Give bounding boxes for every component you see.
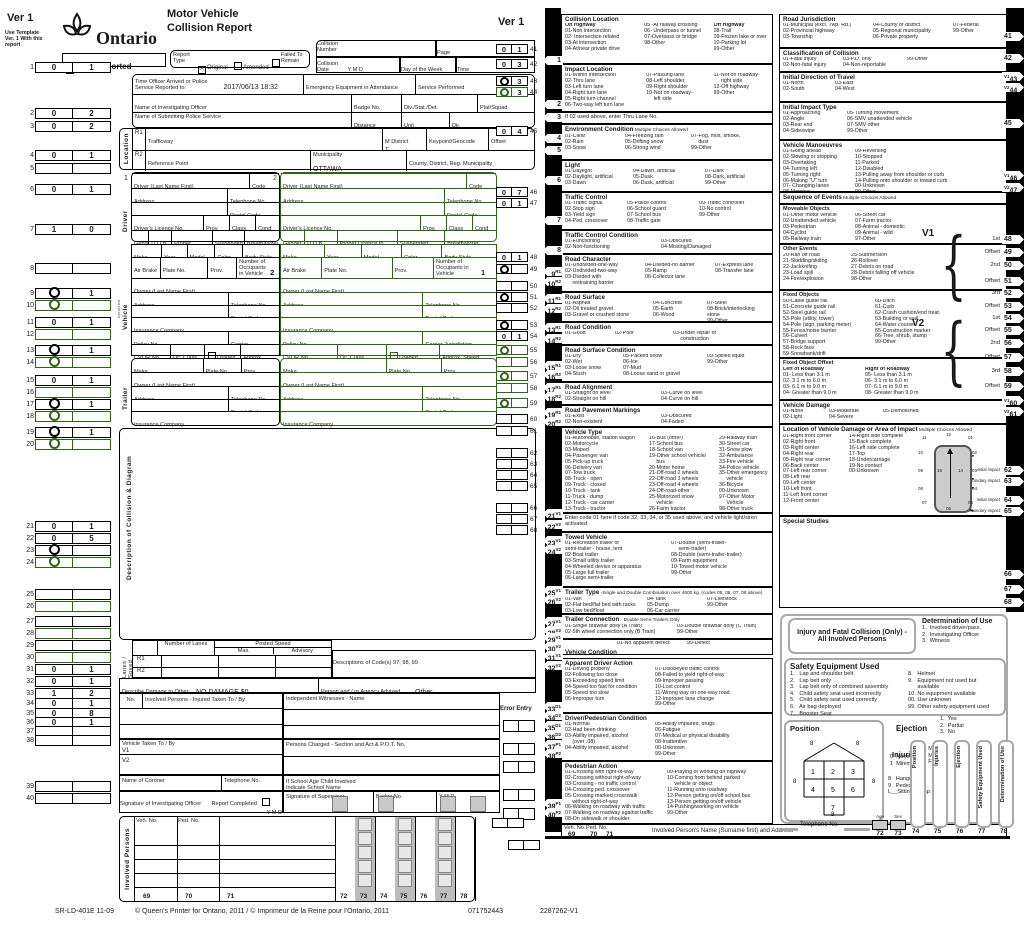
- right-margin-row-63[interactable]: 63: [496, 459, 537, 469]
- descriptions-codes-box[interactable]: Descriptions of Code(s) 97, 98, 99: [332, 650, 536, 678]
- code-section-towed: Towed Vehicle01-Recreation trailer orsem…: [561, 532, 773, 587]
- margin-row-27[interactable]: 27: [24, 616, 111, 627]
- supervisor-signature-label: Signature of Supervisor: [284, 792, 373, 812]
- failed-to-remain-checkbox[interactable]: [272, 59, 280, 67]
- ontario-wordmark: Ontario: [96, 28, 157, 49]
- right-margin-row-59[interactable]: 59: [496, 398, 537, 408]
- margin-row-30[interactable]: 30: [24, 652, 111, 663]
- injured-taken-box[interactable]: No. Involved Persons - Injured Taken To …: [119, 693, 283, 739]
- location-r1: R1: [133, 129, 145, 150]
- right-margin-row-58[interactable]: 58: [496, 383, 537, 393]
- footer-num1: 071752443: [468, 908, 503, 915]
- reference-point-label: Reference Point: [148, 161, 188, 167]
- band-tag-59: 59: [1002, 382, 1024, 391]
- footer-num2: 2287262-V1: [540, 908, 578, 915]
- sex-box[interactable]: Sex 73: [890, 814, 906, 837]
- service-performed-label: Service Performed: [418, 85, 464, 91]
- error-entry-box-4[interactable]: [503, 789, 535, 801]
- page-label: Page: [437, 50, 450, 56]
- right-margin-row-64[interactable]: 64: [496, 470, 537, 480]
- time-label: Time: [457, 67, 469, 73]
- collision-date-ymd: Y M D: [347, 67, 362, 73]
- margin-row-20[interactable]: 20: [24, 439, 111, 450]
- band-tag-42: 42: [1002, 54, 1024, 63]
- collision-number-label: Collision Number: [317, 41, 349, 53]
- right-margin-row-55[interactable]: 55: [496, 345, 537, 355]
- badge-label: Badge No.: [354, 105, 380, 111]
- signature-stamp-3: [440, 796, 456, 812]
- reference-point-cell[interactable]: Reference Point: [145, 151, 310, 171]
- code-section-trailer_conn: Trailer Connection - Double Semi-Trailer…: [561, 614, 773, 639]
- badge-cell[interactable]: Badge No.: [351, 95, 401, 112]
- persons-charged-label: Persons Charged - Section and Act & P.O.…: [284, 740, 499, 757]
- officer-name-label: Name of Investigating Officer: [135, 105, 207, 111]
- ontario-trillium-icon: [58, 12, 96, 57]
- margin-row-19[interactable]: 191: [24, 427, 111, 438]
- right-margin-row-53[interactable]: 53: [496, 320, 537, 330]
- band-tag-48: 48: [1002, 235, 1024, 244]
- police-service-cell[interactable]: Name of Submitting Police Service OPS: [133, 113, 351, 129]
- band-tag-57: 57: [1002, 353, 1024, 362]
- num-75: 75: [934, 828, 941, 835]
- band-tag-53: 53: [1002, 302, 1024, 311]
- band-tag-60: V160: [1002, 396, 1024, 405]
- div-stat-label: Div./Stat./Det.: [404, 105, 438, 111]
- municipality-label: Municipality: [313, 152, 404, 158]
- collision-date-box[interactable]: Collision Date Y M D: [316, 57, 400, 73]
- code-section-init_direction: Initial Direction of Travel01-North02-So…: [779, 72, 1007, 102]
- vehicle1-section-label: Vehicle: [122, 270, 129, 330]
- code-section-init_impact: Initial Impact Type01-Approaching02-Angl…: [779, 102, 1007, 140]
- driver2-box: 2 Driver (Last Name First) Code Address …: [280, 172, 497, 242]
- num-76: 76: [956, 828, 963, 835]
- svg-text:8: 8: [872, 779, 876, 785]
- form-number: SR-LD-401E 11-09: [55, 908, 114, 915]
- plat-squad-cell[interactable]: Plat/Squad: [477, 95, 534, 112]
- band-tag-45: 45: [1002, 119, 1024, 128]
- ejection-items: 1. Yes2. Partial3. No: [940, 716, 964, 736]
- day-of-week-label: Day of the Week: [401, 67, 442, 73]
- svg-text:8: 8: [793, 779, 797, 785]
- time-officer-value: 2017/06/13 18:32: [223, 84, 278, 91]
- code-section-dp_condition: Driver/Pedestrian Condition01-Normal02-H…: [561, 713, 773, 761]
- right-margin-row-42[interactable]: 0342: [496, 59, 537, 69]
- report-type-box: Report Type Original Amended Failed To R…: [170, 50, 310, 68]
- code-section-thru_note: If 02 used above, enter Thru Lane No.: [561, 112, 773, 124]
- time-officer-cell[interactable]: Time Officer Arrived or Police Service R…: [133, 75, 303, 94]
- involved-persons-label: Involved Persons: [124, 828, 131, 890]
- band-tag-61: V261: [1002, 407, 1024, 416]
- margin-row-28[interactable]: 28: [24, 628, 111, 639]
- band-tag-63: 63: [1002, 477, 1024, 486]
- max-header: Max.: [215, 648, 274, 654]
- code-section-road_jurisdiction: Road Jurisdiction01-Municipal (excl. Twp…: [779, 14, 1007, 48]
- amended-checkbox[interactable]: [234, 62, 242, 70]
- margin-row-16[interactable]: 16: [24, 387, 111, 398]
- strip-71: 71: [606, 831, 613, 838]
- coroner-box[interactable]: Name of Coroner Telephone No.: [119, 775, 283, 791]
- band-tag-67: 67: [1002, 585, 1024, 594]
- right-margin-row-66[interactable]: 66: [496, 503, 537, 513]
- original-checkbox[interactable]: [198, 66, 206, 74]
- code-section-trailer_type: Trailer Type -Single and Double Combinat…: [561, 587, 773, 614]
- margin-row-4[interactable]: 401: [24, 150, 111, 161]
- safety-equipment-box: Safety Equipment Used 1. Lap and shoulde…: [784, 658, 1006, 716]
- error-entry-label: Error Entry: [500, 706, 532, 712]
- code-section-light: Light01-Daylight02-Daylight, artificial0…: [561, 160, 773, 192]
- band-tag-66: 66: [1002, 570, 1024, 579]
- margin-row-14[interactable]: 14: [24, 357, 111, 368]
- original-label: Original: [207, 65, 228, 71]
- band-tag-46: V146: [1002, 171, 1024, 180]
- version-label-left: Ver 1: [7, 12, 33, 24]
- right-margin-row-43[interactable]: 343: [496, 76, 537, 86]
- right-margin-row-45[interactable]: 0445: [496, 126, 537, 136]
- advisory-header: Advisory: [274, 648, 332, 654]
- margin-row-7[interactable]: 710: [24, 224, 111, 235]
- school-box[interactable]: If School Age Child Involved Indicate Sc…: [283, 775, 500, 791]
- police-service-label: Name of Submitting Police Service: [135, 114, 349, 120]
- lanes-speed-table: Number of Lanes Posted Speed Max. Adviso…: [132, 640, 332, 678]
- vehicle1-involved-note: Involved: [117, 288, 121, 318]
- svg-text:8: 8: [856, 741, 860, 747]
- amended-label: Amended: [243, 65, 269, 71]
- form-title-line2: Collision Report: [167, 22, 252, 34]
- emergency-cell[interactable]: Emergency Equipment in Attendance: [303, 75, 415, 94]
- svg-text:8: 8: [810, 741, 814, 747]
- descriptions-codes-label: Descriptions of Code(s) 97, 98, 99: [333, 660, 418, 666]
- vehicle-taken-label: Vehicle Taken To / By: [120, 740, 282, 748]
- margin-row-21[interactable]: 2101: [24, 521, 111, 532]
- keypoint-cell[interactable]: Keypoint/Geocode: [426, 129, 488, 150]
- margin-row-39[interactable]: 39: [24, 781, 111, 792]
- collision-number-box[interactable]: Collision Number: [316, 40, 436, 57]
- collision-date-label: Collision Date: [317, 61, 343, 73]
- margin-row-2[interactable]: 202: [24, 108, 111, 119]
- vertical-label-determination-of-use: Determination of Use: [1000, 746, 1006, 802]
- svg-text:5: 5: [831, 787, 835, 794]
- report-completed-label: Report Completed: [212, 801, 257, 807]
- right-margin-row-61[interactable]: 61: [496, 426, 537, 436]
- band-tag-51: 51: [1002, 277, 1024, 286]
- signature-stamp-1: [332, 796, 348, 812]
- description-diagram-box[interactable]: [119, 428, 536, 640]
- svg-text:1: 1: [811, 769, 815, 776]
- right-margin-row-67[interactable]: 67: [496, 514, 537, 524]
- ejection-group: Ejection: [896, 718, 927, 736]
- ejection-title: Ejection: [896, 724, 927, 733]
- seq-v2-brace: {: [941, 308, 967, 394]
- right-margin-row-68[interactable]: 68: [496, 525, 537, 535]
- margin-row-8[interactable]: 8: [24, 263, 111, 274]
- seq-v1-label: V1: [922, 228, 934, 239]
- margin-row-10[interactable]: 10: [24, 300, 111, 311]
- band-tag-49: 49: [1002, 248, 1024, 257]
- band-tag-64: 64: [1002, 496, 1024, 505]
- municipality-cell[interactable]: Municipality OTTAWA: [310, 151, 406, 171]
- band-tag-50: 50: [1002, 261, 1024, 270]
- svg-text:3: 3: [851, 769, 855, 776]
- vehicle2-box: Make Year Model Color Body Style Air Bra…: [280, 244, 497, 356]
- vehicle-damage-diagram: 0102030405060708091011121416: [922, 438, 982, 518]
- margin-row-32[interactable]: 3201: [24, 676, 111, 687]
- number-of-lanes-header: Number of Lanes: [158, 641, 215, 655]
- right-margin-row-47[interactable]: 0147: [496, 198, 537, 208]
- band-tag-47: V247: [1002, 183, 1024, 192]
- right-margin-row-62[interactable]: 62: [496, 448, 537, 458]
- right-margin-row-57[interactable]: 57: [496, 371, 537, 381]
- code-section-road_surface: Road Surface01-Asphalt02-Oil treated gra…: [561, 292, 773, 322]
- code-section-driver_action: Apparent Driver Action01-Driving properl…: [561, 658, 773, 713]
- margin-row-3[interactable]: 302: [24, 121, 111, 132]
- description-section-label: Description of Collision & Diagram: [126, 490, 133, 580]
- margin-row-24[interactable]: 24: [24, 557, 111, 568]
- margin-row-9[interactable]: 91: [24, 288, 111, 299]
- code-section-ped_action: Pedestrian Action01-Crossing with right-…: [561, 761, 773, 824]
- distance-cell[interactable]: Distance: [351, 113, 401, 129]
- vertical-label-ejection: Ejection: [956, 746, 962, 768]
- code-section-seq_header: Sequence of Events Multiple Choices Allo…: [779, 192, 1007, 204]
- strip-70: 70: [590, 831, 597, 838]
- margin-row-25[interactable]: 25: [24, 589, 111, 600]
- code-section-rpm: Road Pavement Markings01-Exist02-Non-exi…: [561, 405, 773, 427]
- lanes-r1[interactable]: R1: [133, 656, 162, 667]
- m-district-cell[interactable]: M District TO: [382, 129, 426, 150]
- right-margin-row-48[interactable]: 0148: [496, 252, 537, 262]
- injury-fatal-title-box: Injury and Fatal Collision (Only) - All …: [788, 618, 916, 654]
- error-entry-box-2[interactable]: [503, 743, 535, 755]
- code-section-fixed_objects: Fixed Objects50-Cable guide rail51-Concr…: [779, 290, 1007, 358]
- band-tag-44: V244: [1002, 83, 1024, 92]
- error-entry-box-1[interactable]: [503, 720, 535, 732]
- band-tag-62: 62: [1002, 466, 1024, 475]
- seq-v1-brace: {: [941, 222, 967, 308]
- code-section-vehicle_cond: Vehicle Condition01-No apparent defect99…: [561, 639, 773, 655]
- margin-row-12[interactable]: 12: [24, 329, 111, 340]
- location-r2: R2: [133, 151, 145, 171]
- position-diagram: 123456788888: [790, 735, 878, 822]
- margin-row-17[interactable]: 171: [24, 399, 111, 410]
- trafficway-cell[interactable]: Trafficway: [145, 129, 382, 150]
- persons-charged-box[interactable]: Persons Charged - Section and Act & P.O.…: [283, 739, 500, 775]
- emergency-label: Emergency Equipment in Attendance: [306, 85, 398, 91]
- vehicle-taken-v2: V2: [120, 755, 282, 767]
- code-section-fixed_offset: Fixed Object OffsetLeft of Roadway01- Le…: [779, 358, 1007, 400]
- svg-text:4: 4: [811, 787, 815, 794]
- right-margin-row-44[interactable]: 344: [496, 87, 537, 97]
- time-officer-label: Time Officer Arrived or Police Service R…: [135, 79, 219, 91]
- county-label: County, District, Reg. Municipality: [409, 161, 492, 167]
- keypoint-label: Keypoint/Geocode: [429, 139, 475, 145]
- right-margin-row-52[interactable]: 52: [496, 303, 537, 313]
- report-completed-checkbox[interactable]: [262, 798, 270, 806]
- right-margin-row-50[interactable]: 50: [496, 281, 537, 291]
- code-section-classification: Classification of Collision01-Fatal inju…: [779, 48, 1007, 72]
- use-template-note: Use Template Ver. 1 With this report: [5, 30, 47, 48]
- code-section-code01_note: Enter code 01 here if code 32, 33, 34, o…: [561, 513, 773, 532]
- officer-name-cell[interactable]: Name of Investigating Officer: [133, 95, 351, 112]
- margin-row-5[interactable]: 5: [24, 163, 111, 174]
- margin-row-22[interactable]: 2205: [24, 533, 111, 544]
- age-box[interactable]: Age 72: [872, 814, 888, 837]
- error-entry-box-3[interactable]: [503, 761, 535, 773]
- school-label: If School Age Child Involved Indicate Sc…: [284, 778, 378, 792]
- determination-title: Determination of Use: [922, 618, 1006, 625]
- injured-no-header: No.: [120, 694, 143, 708]
- code-section-collision_location: Collision LocationOn Highway01-Non inter…: [561, 14, 773, 64]
- right-margin-row-65[interactable]: 65: [496, 481, 537, 491]
- margin-row-15[interactable]: 1501: [24, 375, 111, 386]
- code-section-road_alignment: Road Alignment01-Straight on level02-Str…: [561, 382, 773, 405]
- coroner-label: Name of Coroner: [120, 776, 221, 790]
- posted-speed-header: Posted Speed: [215, 641, 331, 648]
- code-section-environment: Environment Condition Multiple Choices A…: [561, 124, 773, 160]
- margin-row-13[interactable]: 131: [24, 345, 111, 356]
- margin-row-40[interactable]: 40: [24, 793, 111, 804]
- failed-to-remain-label: Failed To Remain: [281, 53, 309, 64]
- telephone-label: Telephone No.: [800, 822, 839, 828]
- vehicle1-box: Make Year Model Color Body Style Air Bra…: [131, 244, 280, 356]
- coroner-telephone-label: Telephone No.: [221, 776, 282, 790]
- right-margin-row-51[interactable]: 51: [496, 292, 537, 302]
- right-margin-row-54[interactable]: 0154: [496, 331, 537, 341]
- right-margin-row-56[interactable]: 56: [496, 357, 537, 367]
- position-title: Position: [790, 724, 878, 733]
- code-section-tcc: Traffic Control Condition01-Functioning0…: [561, 230, 773, 254]
- band-tag-58: 58: [1002, 367, 1024, 376]
- location-section: Location R1 Trafficway M District TO Key…: [119, 128, 535, 170]
- trailer1-box: Make Plate No. Prov. Owner (Last Name Fi…: [131, 358, 280, 426]
- header-grid: Time Officer Arrived or Police Service R…: [132, 74, 535, 128]
- div-stat-cell[interactable]: Div./Stat./Det.: [401, 95, 477, 112]
- right-margin-row-46[interactable]: 0746: [496, 187, 537, 197]
- determination-of-use: Determination of Use 1. Involved driver/…: [922, 618, 1006, 645]
- vehicle-taken-box[interactable]: Vehicle Taken To / By V1 V2: [119, 739, 283, 775]
- code-section-road_character: Road Character01-Undivided-one-way02-Und…: [561, 254, 773, 292]
- band-tag-68: 68: [1002, 598, 1024, 607]
- vertical-label-injuries: Injuries: [934, 746, 940, 766]
- code-section-veh_manoeuvre: Vehicle Manoeuvres01-Going ahead02-Slowi…: [779, 140, 1007, 192]
- offset-label: Offset: [491, 139, 506, 145]
- day-of-week-box[interactable]: Day of the Week: [400, 57, 456, 73]
- strip-name-address: Involved Person's Name (Surname first) a…: [652, 828, 793, 834]
- band-tag-54: 54: [1002, 314, 1024, 323]
- code-section-vehicle_type: Vehicle Type01-Automobile, station wagon…: [561, 427, 773, 513]
- right-margin-row-41[interactable]: 0141: [496, 44, 537, 54]
- county-cell[interactable]: County, District, Reg. Municipality: [406, 151, 534, 171]
- codes-column-1: Collision LocationOn Highway01-Non inter…: [561, 0, 773, 845]
- margin-row-6[interactable]: 601: [24, 184, 111, 195]
- signature-stamp-4: [470, 796, 486, 812]
- num-77: 77: [978, 828, 985, 835]
- num-78: 78: [1000, 828, 1007, 835]
- involved-persons-grid: Involved Persons Veh. No.69Ped. No.70717…: [119, 816, 475, 902]
- injury-fatal-title: Injury and Fatal Collision (Only) - All …: [790, 629, 914, 643]
- safety-equipment-title: Safety Equipment Used: [790, 662, 1000, 671]
- vertical-label-position: Position: [912, 746, 918, 768]
- margin-row-1[interactable]: 101: [24, 62, 111, 73]
- m-district-label: M District: [385, 139, 408, 145]
- vertical-label-safety-equipment-used: Safety Equipment Used: [978, 746, 984, 808]
- svg-text:7: 7: [831, 805, 835, 812]
- num-74: 74: [912, 828, 919, 835]
- witnesses-box[interactable]: Independent Witnesses - Name: [283, 693, 500, 739]
- code-section-veh_damage: Vehicle Damage01-None02-Light03-Moderate…: [779, 400, 1007, 424]
- margin-row-18[interactable]: 18: [24, 411, 111, 422]
- unit-cell[interactable]: Unit: [401, 113, 449, 129]
- band-tag-43: V143: [1002, 72, 1024, 81]
- seq-v2-label: V2: [912, 318, 924, 329]
- signature-stamp-2: [378, 796, 394, 812]
- margin-row-29[interactable]: 29: [24, 640, 111, 651]
- collision-report-page: Ver 1 Use Template Ver. 1 With this repo…: [0, 0, 1024, 932]
- code-section-rsc: Road Surface Condition01-Dry02-Wet03-Loo…: [561, 345, 773, 382]
- band-tag-65: 65: [1002, 507, 1024, 516]
- svg-text:6: 6: [851, 787, 855, 794]
- version-label-right: Ver 1: [498, 16, 524, 28]
- right-margin-row-60[interactable]: 60: [496, 414, 537, 424]
- margin-row-31[interactable]: 3101: [24, 664, 111, 675]
- margin-row-38[interactable]: 38: [24, 735, 111, 746]
- injured-taken-label: Involved Persons - Injured Taken To / By: [143, 694, 282, 708]
- code-section-road_condition: Road Condition01-Good02-Poor03-Under rep…: [561, 322, 773, 345]
- copyright: © Queen's Printer for Ontario, 2011 / © …: [135, 908, 389, 915]
- band-tag-55: 55: [1002, 326, 1024, 335]
- witnesses-label: Independent Witnesses - Name: [284, 694, 499, 710]
- code-section-impact_location: Impact Location01-Within intersection02-…: [561, 64, 773, 112]
- svg-text:2: 2: [831, 769, 835, 776]
- grid-side-box-2: [508, 840, 540, 850]
- damage-row: Describe Damage to Other Property NO DAM…: [119, 678, 536, 693]
- code-section-traffic_control: Traffic Control01-Traffic signal02-Stop …: [561, 192, 773, 230]
- plat-squad-label: Plat/Squad: [480, 105, 507, 111]
- code-section-special: Special Studies: [779, 516, 1007, 608]
- location-section-label: Location: [123, 133, 130, 164]
- band-tag-52: 52: [1002, 289, 1024, 298]
- position-box: Position 123456788888: [784, 720, 884, 822]
- form-title-line1: Motor Vehicle: [167, 8, 239, 20]
- band-tag-56: 56: [1002, 339, 1024, 348]
- officer-signature-label: Signature of Investigating Officer: [120, 801, 201, 807]
- vehicle-taken-v1: V1: [120, 748, 282, 755]
- trailer2-box: Make Plate No. Prov. Owner (Last Name Fi…: [280, 358, 497, 426]
- driver1-box: 1 Driver (Last Name First) Code Address …: [131, 172, 280, 242]
- band-tag-41: 41: [1002, 32, 1024, 41]
- margin-row-23[interactable]: 23: [24, 545, 111, 556]
- margin-row-26[interactable]: 26: [24, 601, 111, 612]
- driver1-section-label: Driver: [122, 182, 129, 232]
- grid-side-box-1: [492, 818, 524, 828]
- strip-69: 69: [568, 831, 575, 838]
- margin-row-11[interactable]: 1101: [24, 317, 111, 328]
- municipality-value: OTTAWA: [313, 166, 342, 171]
- right-margin-row-49[interactable]: 49: [496, 264, 537, 274]
- officer-signature-box[interactable]: Signature of Investigating Officer Repor…: [119, 791, 283, 813]
- trafficway-label: Trafficway: [148, 139, 173, 145]
- report-type-label: Report Type: [173, 52, 195, 64]
- trailer1-section-label: Trailer: [122, 366, 129, 410]
